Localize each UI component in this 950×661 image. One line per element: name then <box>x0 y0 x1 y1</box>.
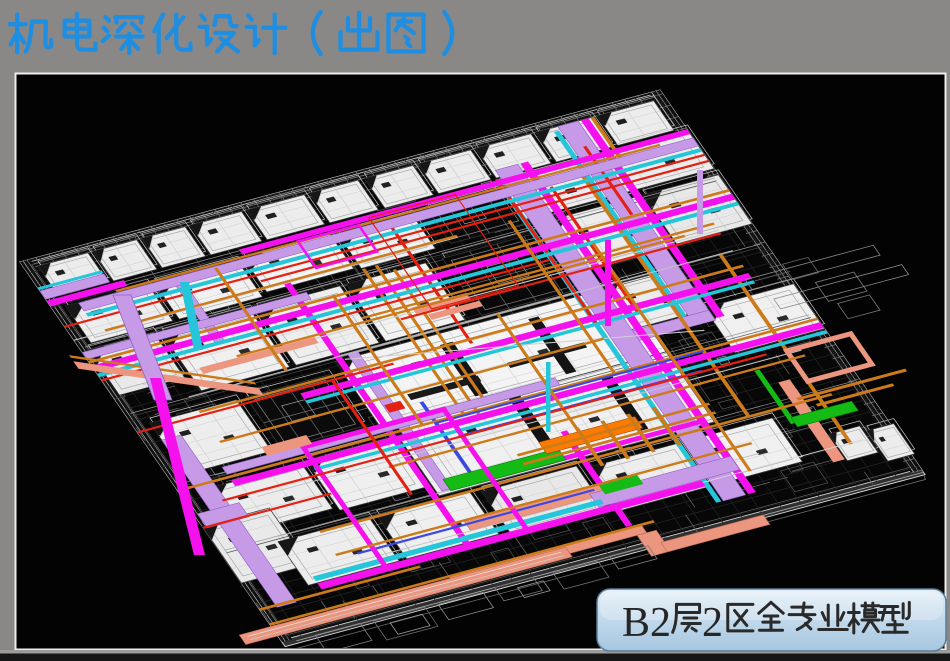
svg-text:B2: B2 <box>622 600 671 646</box>
svg-text:2: 2 <box>702 600 723 646</box>
